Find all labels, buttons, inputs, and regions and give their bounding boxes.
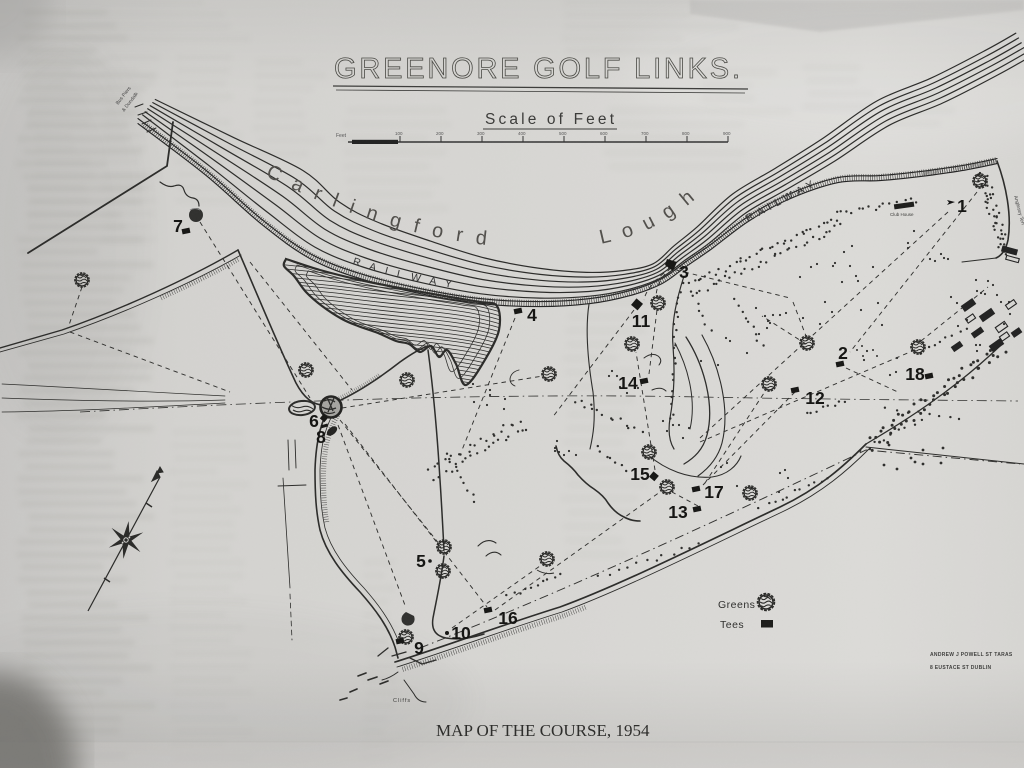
svg-text:Cliffs: Cliffs	[393, 698, 411, 704]
